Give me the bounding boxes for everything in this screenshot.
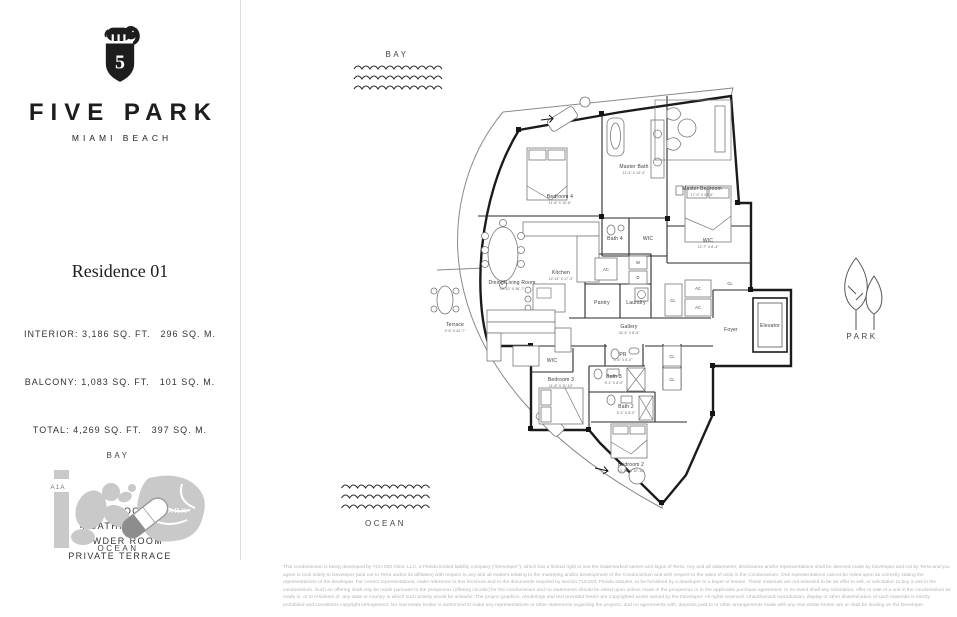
park-label: PARK xyxy=(832,332,892,341)
residence-stats: INTERIOR: 3,186 SQ. FT. 296 SQ. M. BALCO… xyxy=(0,294,240,470)
room-dims: 11'-8" X 11'-10" xyxy=(549,384,574,388)
balcony-table-icon xyxy=(580,97,590,107)
bedroom3-bed-icon xyxy=(539,388,583,424)
floor-plan: Bedroom 4 11'-8" X 10'-8" Master Bath 11… xyxy=(415,78,805,518)
room-label: Bedroom 4 xyxy=(547,194,573,200)
room-label: Elevator xyxy=(760,323,780,329)
site-map: A1A PARK xyxy=(25,468,210,555)
room-label: Bedroom 2 xyxy=(618,462,644,468)
ocean-label: OCEAN xyxy=(338,519,433,528)
sitemap-park-label: PARK xyxy=(162,508,189,515)
stat-balcony: BALCONY: 1,083 SQ. FT. 101 SQ. M. xyxy=(0,374,240,390)
closet-label: CL xyxy=(669,354,675,359)
room-label: Master Bath xyxy=(619,164,648,170)
room-label: Laundry xyxy=(626,300,646,306)
room-label: Foyer xyxy=(724,327,738,333)
room-label: WIC xyxy=(547,358,558,364)
room-label: Bedroom 3 xyxy=(548,377,574,383)
elephant-shield-icon: 5 xyxy=(92,16,148,86)
ac-label: AC xyxy=(695,286,701,291)
legal-disclaimer: This condominium is being developed by T… xyxy=(283,564,952,610)
brochure-page: 5 FIVE PARK MIAMI BEACH Residence 01 INT… xyxy=(0,0,957,617)
a1a-label: A1A xyxy=(50,484,65,491)
room-dims: 5'-1" X 8'-0" xyxy=(617,411,636,415)
stat-total: TOTAL: 4,269 SQ. FT. 397 SQ. M. xyxy=(0,422,240,438)
room-label: Bath 4 xyxy=(607,236,623,242)
room-dims: 4'-6" X 8'-0" xyxy=(614,358,633,362)
room-label: Bath 2 xyxy=(618,404,634,410)
sidebar: 5 FIVE PARK MIAMI BEACH Residence 01 INT… xyxy=(0,0,240,617)
terrace-table-icon xyxy=(431,286,459,314)
park-trees-icon xyxy=(836,252,888,332)
brand-logo: 5 xyxy=(0,16,240,91)
room-dims: 13'-10" X 38'-7" xyxy=(500,287,525,291)
room-dims: 11'-4" X 14'-4" xyxy=(623,171,646,175)
room-label: Gallery xyxy=(620,324,638,330)
closet-label: CL xyxy=(669,377,675,382)
room-dims: 12'-11" X 17'-3" xyxy=(549,277,574,281)
svg-text:5: 5 xyxy=(115,52,125,74)
bed-icon xyxy=(527,148,567,200)
closet-label: CL xyxy=(670,298,676,303)
room-label: WIC xyxy=(643,236,654,242)
sitemap-bay-label: BAY xyxy=(0,451,236,460)
vanity-icon xyxy=(651,120,664,178)
residence-title: Residence 01 xyxy=(0,261,240,282)
stat-interior: INTERIOR: 3,186 SQ. FT. 296 SQ. M. xyxy=(0,326,240,342)
ac-label: AC xyxy=(695,305,701,310)
dryer-label: D xyxy=(637,275,640,280)
bathtub-icon xyxy=(607,118,624,156)
room-dims: 13'-10" X 10'-10" xyxy=(618,469,645,473)
closet-label: CL xyxy=(727,281,733,286)
brand-tagline: MIAMI BEACH xyxy=(0,133,240,143)
shower-icon xyxy=(627,368,645,391)
ac-label: AC xyxy=(603,267,609,272)
room-dims: 17'-0" X 20'-4" xyxy=(691,193,714,197)
room-dims: 9'-6" X 42'-7" xyxy=(445,329,466,333)
sidebar-divider xyxy=(240,0,241,560)
closet-icon xyxy=(663,346,681,390)
bedroom2-bed-icon xyxy=(611,424,647,458)
room-label: Pantry xyxy=(594,300,610,306)
room-dims: 5'-1" X 8'-0" xyxy=(605,381,624,385)
room-label: Kitchen xyxy=(552,270,570,276)
room-label: Terrace xyxy=(446,322,464,328)
room-label: Bath 3 xyxy=(606,374,622,380)
bay-label: BAY xyxy=(352,50,442,59)
site-map-icon: A1A PARK xyxy=(25,468,210,550)
washer-label: W xyxy=(636,260,640,265)
room-label: Master Bedroom xyxy=(682,186,722,192)
room-dims: 12'-7" X 6'-4" xyxy=(698,245,719,249)
room-label: WIC xyxy=(703,238,714,244)
room-label: Dining/Living Room xyxy=(489,280,536,286)
sitemap-ocean-label: OCEAN xyxy=(0,544,236,553)
room-dims: 11'-8" X 10'-8" xyxy=(549,201,572,205)
brand-name: FIVE PARK xyxy=(0,99,240,127)
room-dims: 34'-4" X 8'-6" xyxy=(619,331,640,335)
